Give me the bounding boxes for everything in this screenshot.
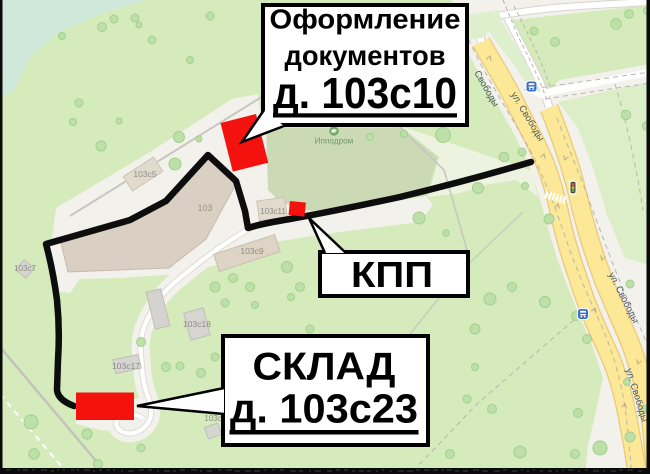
svg-text:103с9: 103с9 (240, 246, 263, 256)
svg-text:103с7: 103с7 (14, 264, 36, 273)
svg-text:д. 103с23: д. 103с23 (230, 386, 418, 432)
svg-text:д. 103с10: д. 103с10 (273, 70, 457, 118)
svg-text:103с5: 103с5 (133, 169, 156, 179)
svg-text:103с18: 103с18 (183, 319, 211, 329)
svg-text:документов: документов (285, 40, 446, 71)
svg-text:Оформление: Оформление (270, 4, 461, 35)
svg-text:КПП: КПП (351, 254, 433, 295)
svg-text:СКЛАД: СКЛАД (253, 346, 396, 389)
svg-text:103с: 103с (204, 414, 221, 423)
svg-text:103с11: 103с11 (260, 207, 286, 216)
svg-text:Ипподром: Ипподром (315, 137, 354, 146)
svg-text:103: 103 (197, 203, 212, 213)
svg-text:103с17: 103с17 (112, 361, 140, 371)
